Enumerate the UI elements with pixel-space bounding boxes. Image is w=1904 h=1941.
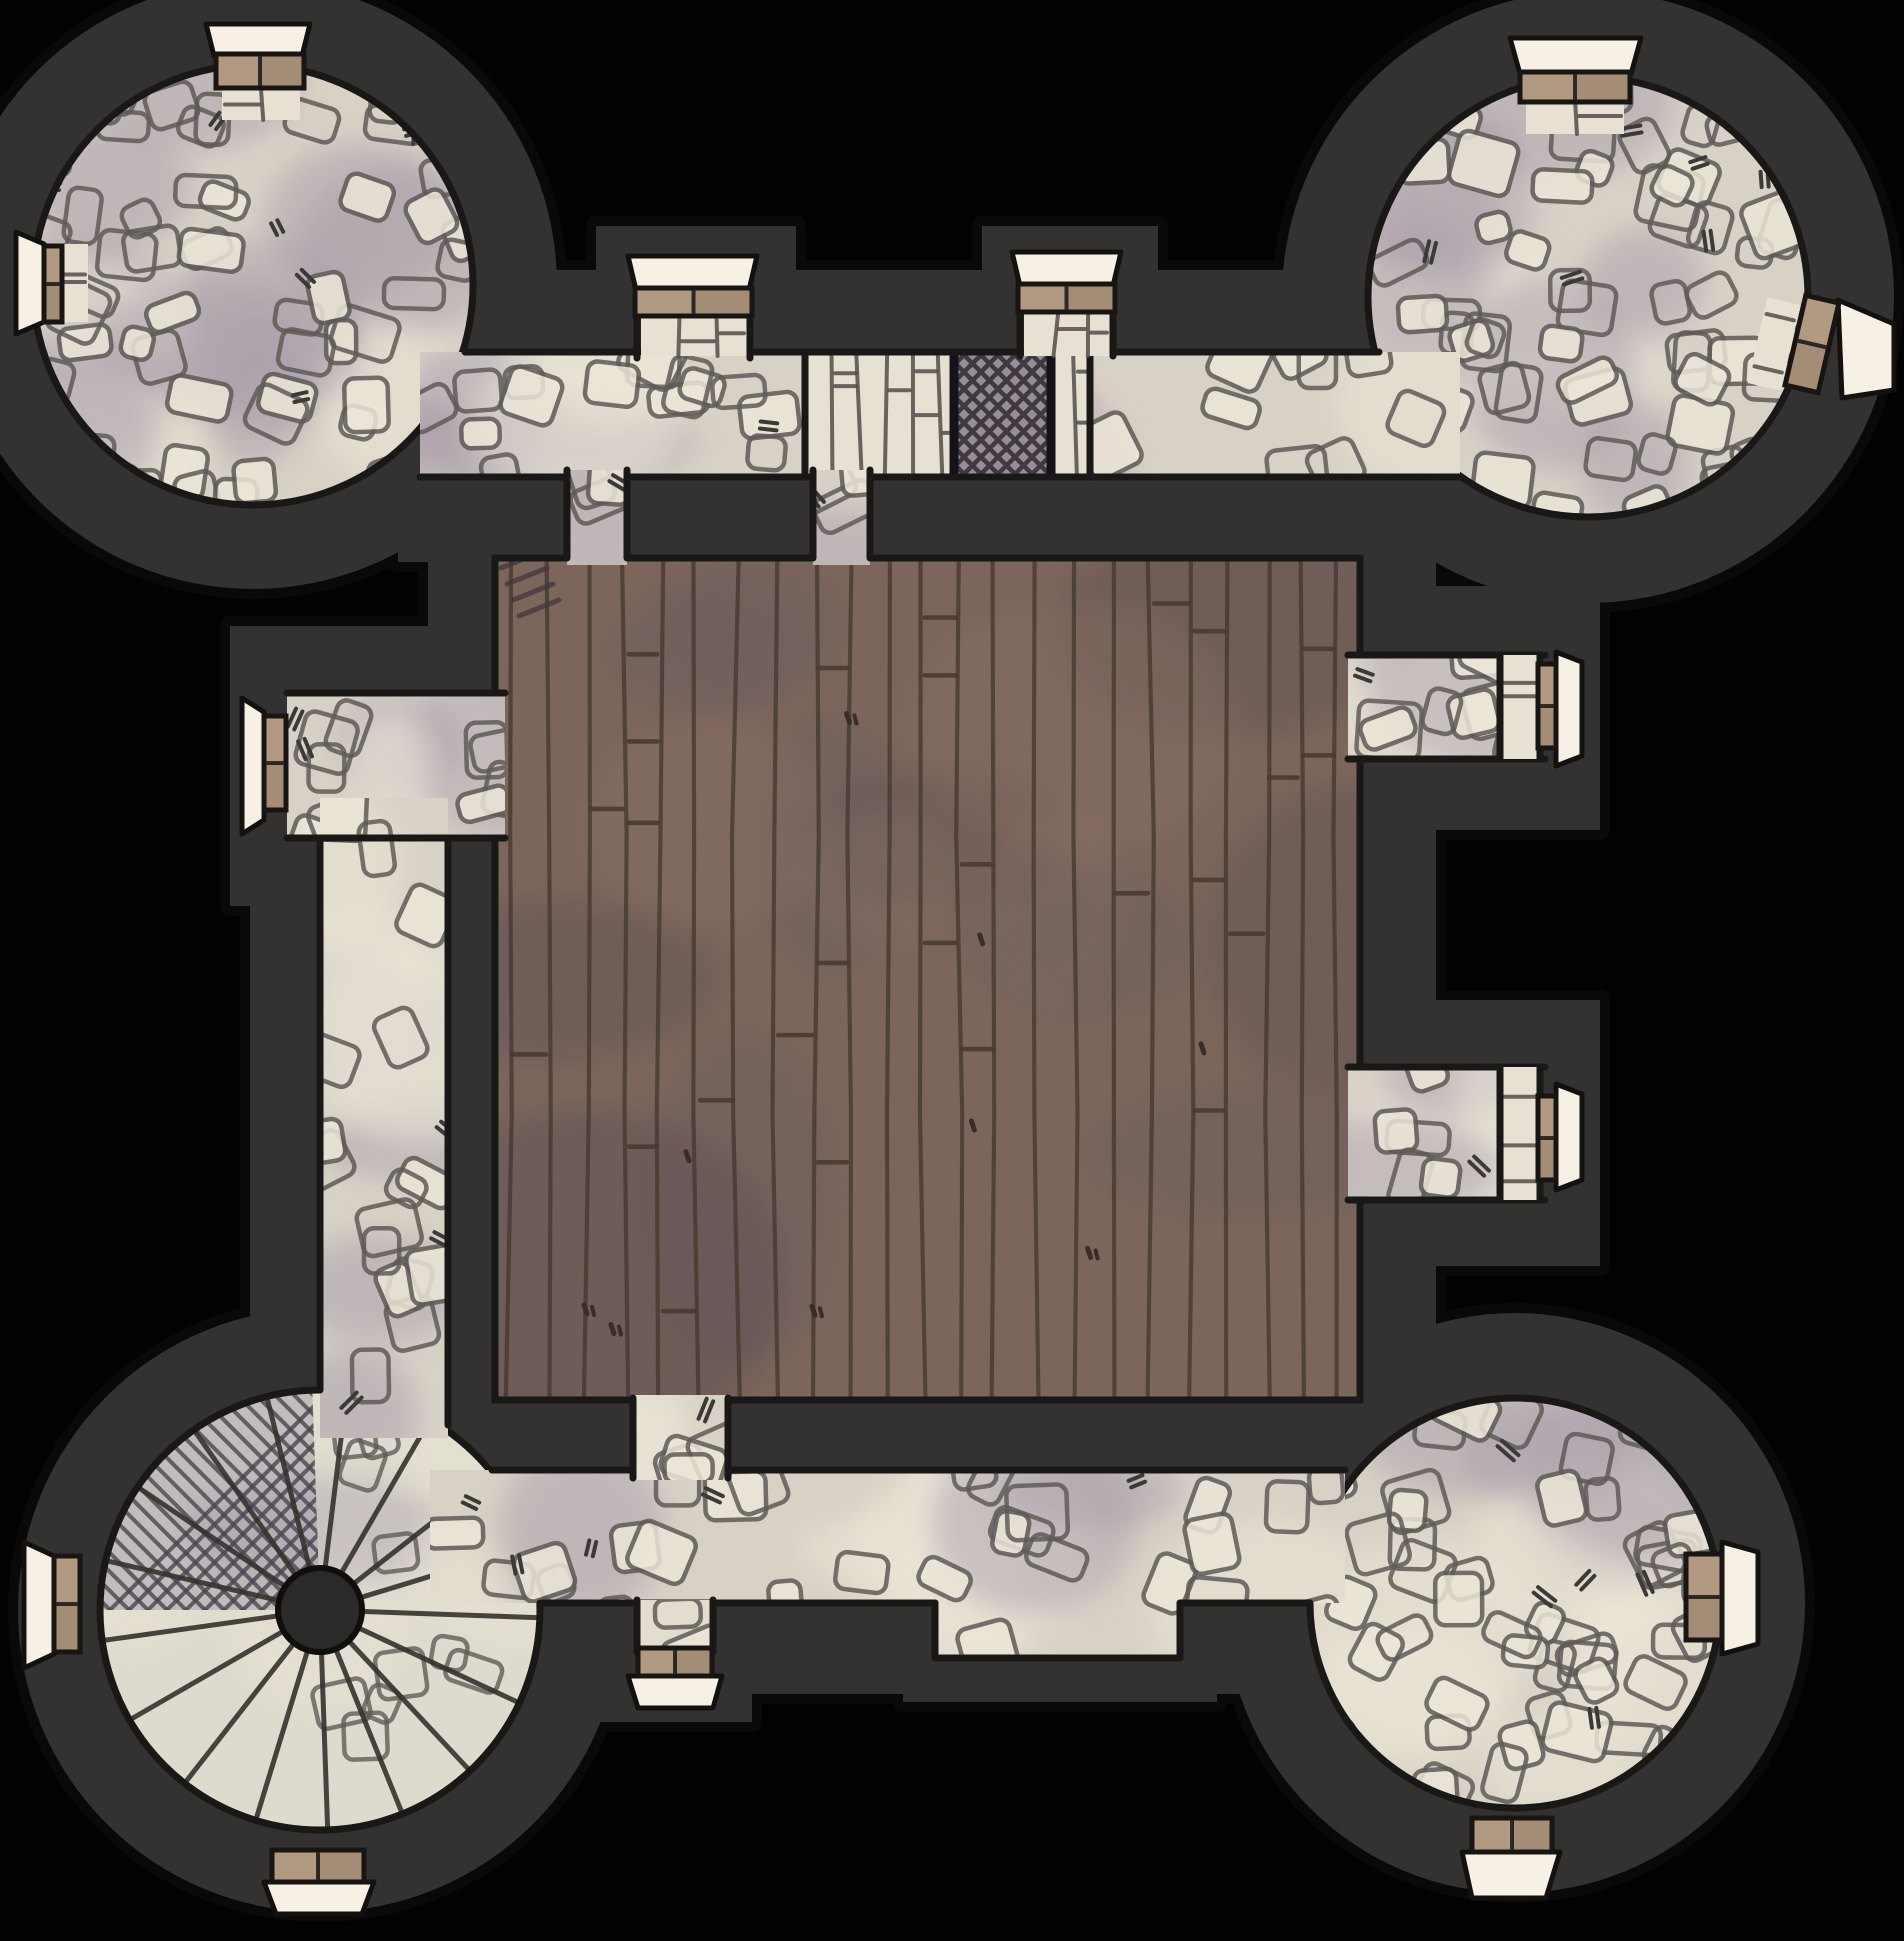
floor-ne-north-door-brick (1526, 100, 1624, 134)
door-hall-east-lower-exterior-threshold (1556, 1084, 1582, 1190)
floor-east-upper-door-brick (1500, 655, 1540, 759)
door-se-tower-east-exterior-threshold (1722, 1542, 1758, 1654)
door-south-gate-exterior (628, 1648, 722, 1708)
door-nw-tower-north-exterior-threshold (206, 24, 310, 56)
floor-nw-west-door-brick (62, 244, 88, 322)
door-hall-east-upper-exterior (1538, 652, 1582, 766)
stair-center-post (278, 1568, 362, 1652)
door-nw-tower-west-exterior (16, 232, 62, 334)
door-se-tower-south-exterior-threshold (1462, 1852, 1560, 1898)
castle-keep-battlemap (0, 0, 1904, 1941)
door-north-gate-west-threshold (628, 256, 757, 290)
door-ne-tower-north-exterior (1510, 38, 1641, 102)
floor-north-gate-west-brick (641, 312, 747, 356)
floor-central-hall-wood-floor (369, 524, 1509, 1450)
door-ne-tower-north-exterior-threshold (1510, 38, 1641, 74)
door-hall-west-exterior-threshold (242, 698, 264, 834)
door-north-gate-east-threshold (1012, 252, 1121, 286)
door-sw-tower-west-exterior (24, 1542, 80, 1668)
dungeon-map-canvas (0, 0, 1904, 1941)
door-nw-tower-north-exterior (206, 24, 310, 88)
door-sw-tower-west-exterior-threshold (24, 1542, 54, 1668)
door-north-gate-east (1012, 252, 1121, 312)
door-south-gate-exterior-threshold (628, 1676, 722, 1708)
door-north-gate-west (628, 256, 757, 316)
door-se-tower-east-exterior (1686, 1542, 1758, 1654)
floor-north-gate-east-brick (1024, 310, 1110, 356)
floor-nw-north-door-brick (222, 86, 300, 120)
door-sw-tower-south-exterior-threshold (264, 1882, 374, 1914)
door-sw-tower-south-exterior (264, 1850, 374, 1914)
door-nw-tower-west-exterior-threshold (16, 232, 44, 334)
door-hall-east-upper-exterior-threshold (1556, 652, 1582, 766)
door-hall-east-lower-exterior (1538, 1084, 1582, 1190)
door-se-tower-south-exterior (1462, 1818, 1560, 1898)
floor-east-lower-door-brick (1500, 1067, 1540, 1200)
